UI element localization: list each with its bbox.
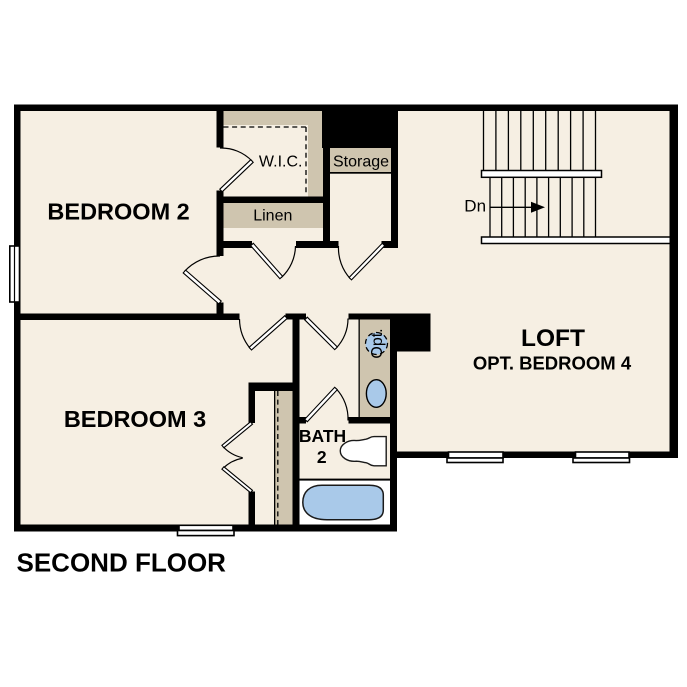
svg-text:Dn: Dn <box>464 196 486 215</box>
svg-text:BEDROOM 3: BEDROOM 3 <box>64 406 206 432</box>
svg-text:2: 2 <box>317 447 327 467</box>
svg-text:Opt.: Opt. <box>369 328 386 358</box>
svg-text:BEDROOM 2: BEDROOM 2 <box>47 199 189 225</box>
svg-text:Linen: Linen <box>253 208 292 225</box>
svg-text:OPT. BEDROOM 4: OPT. BEDROOM 4 <box>473 353 632 374</box>
svg-text:SECOND FLOOR: SECOND FLOOR <box>17 548 227 578</box>
svg-text:W.I.C.: W.I.C. <box>259 154 303 171</box>
svg-text:BATH: BATH <box>299 426 346 446</box>
svg-text:Storage: Storage <box>333 153 389 170</box>
svg-text:LOFT: LOFT <box>521 325 585 352</box>
